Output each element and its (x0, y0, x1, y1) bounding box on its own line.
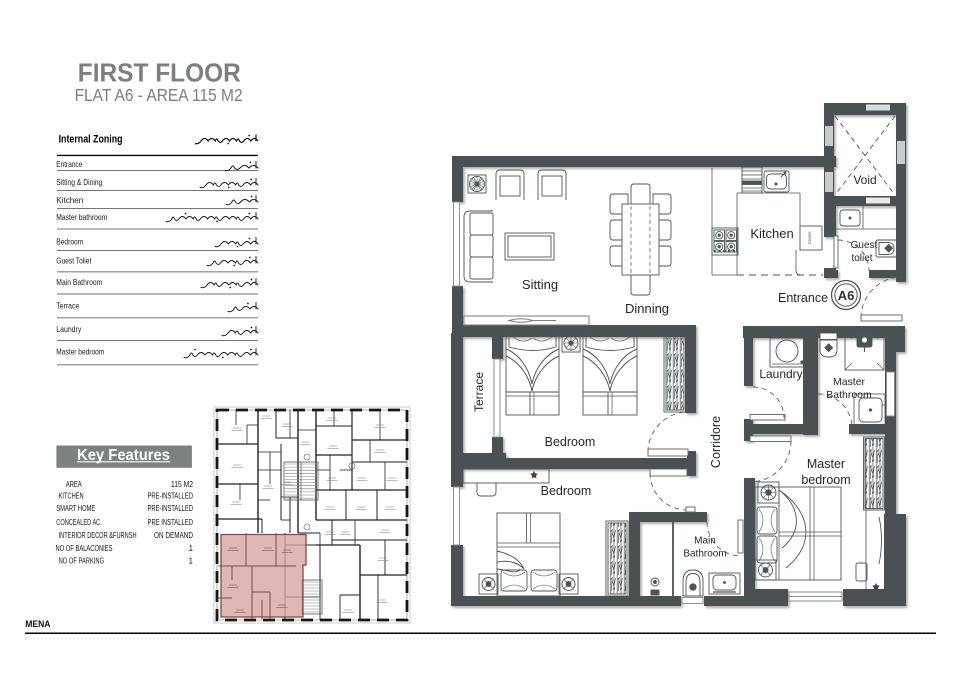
svg-text:Laundry: Laundry (56, 325, 81, 334)
svg-text:Master: Master (807, 457, 845, 471)
svg-text:Kitchen: Kitchen (750, 226, 793, 241)
svg-text:Dinning: Dinning (625, 301, 669, 316)
svg-text:Master bathroom: Master bathroom (56, 213, 107, 222)
svg-text:Internal Zoning: Internal Zoning (59, 134, 123, 146)
svg-text:INTERIOR DECOR &FURNSH: INTERIOR DECOR &FURNSH (59, 531, 137, 540)
svg-text:NO OF PARKING: NO OF PARKING (59, 557, 105, 566)
svg-text:FLAT A6 - AREA 115 M2: FLAT A6 - AREA 115 M2 (75, 85, 243, 105)
svg-text:Kitchen: Kitchen (56, 196, 83, 205)
svg-text:1: 1 (189, 557, 193, 566)
svg-text:Main Bathroom: Main Bathroom (56, 278, 102, 287)
svg-text:Entrance: Entrance (778, 291, 828, 305)
svg-text:Sitting: Sitting (522, 277, 558, 292)
svg-text:A6: A6 (838, 288, 855, 303)
svg-text:SMART HOME: SMART HOME (56, 504, 95, 513)
svg-text:Void: Void (853, 173, 876, 187)
svg-text:PRE INSTALLED: PRE INSTALLED (148, 518, 194, 527)
svg-text:Terrace: Terrace (56, 302, 79, 311)
svg-text:AREA: AREA (66, 480, 83, 489)
svg-text:Sitting & Dining: Sitting & Dining (56, 178, 102, 187)
svg-text:toliet: toliet (851, 253, 872, 264)
svg-text:PRE-INSTALLED: PRE-INSTALLED (148, 504, 194, 513)
svg-text:KITCHEN: KITCHEN (59, 492, 84, 501)
svg-text:Bedroom: Bedroom (541, 484, 592, 498)
svg-text:MENA: MENA (25, 619, 51, 629)
svg-text:Corridore: Corridore (709, 416, 723, 468)
svg-text:Laundry: Laundry (759, 367, 802, 381)
svg-text:PRE-INSTALLED: PRE-INSTALLED (148, 492, 194, 501)
svg-text:Bathroom: Bathroom (826, 389, 872, 401)
svg-text:115 M2: 115 M2 (171, 480, 193, 489)
svg-text:ON DEMAND: ON DEMAND (154, 531, 193, 540)
svg-text:Entrance: Entrance (56, 160, 82, 169)
svg-text:TOWER: TOWER (808, 231, 812, 245)
svg-text:CONCEALED AC.: CONCEALED AC. (56, 518, 102, 527)
svg-text:Master bedroom: Master bedroom (56, 347, 104, 356)
svg-text:Bathroom: Bathroom (683, 549, 726, 560)
svg-text:FIRST FLOOR: FIRST FLOOR (78, 57, 241, 87)
svg-text:Terrace: Terrace (472, 372, 486, 412)
svg-text:Bedroom: Bedroom (545, 435, 596, 449)
svg-text:Guest: Guest (851, 240, 878, 251)
svg-text:bedroom: bedroom (801, 473, 850, 487)
svg-text:NO OF BALACONIES: NO OF BALACONIES (56, 544, 113, 553)
svg-text:Guest Toliet: Guest Toliet (56, 257, 92, 266)
svg-text:1: 1 (189, 544, 193, 553)
svg-text:Bedroom: Bedroom (56, 237, 83, 246)
svg-text:Master: Master (833, 376, 866, 388)
svg-text:Main: Main (694, 536, 716, 547)
